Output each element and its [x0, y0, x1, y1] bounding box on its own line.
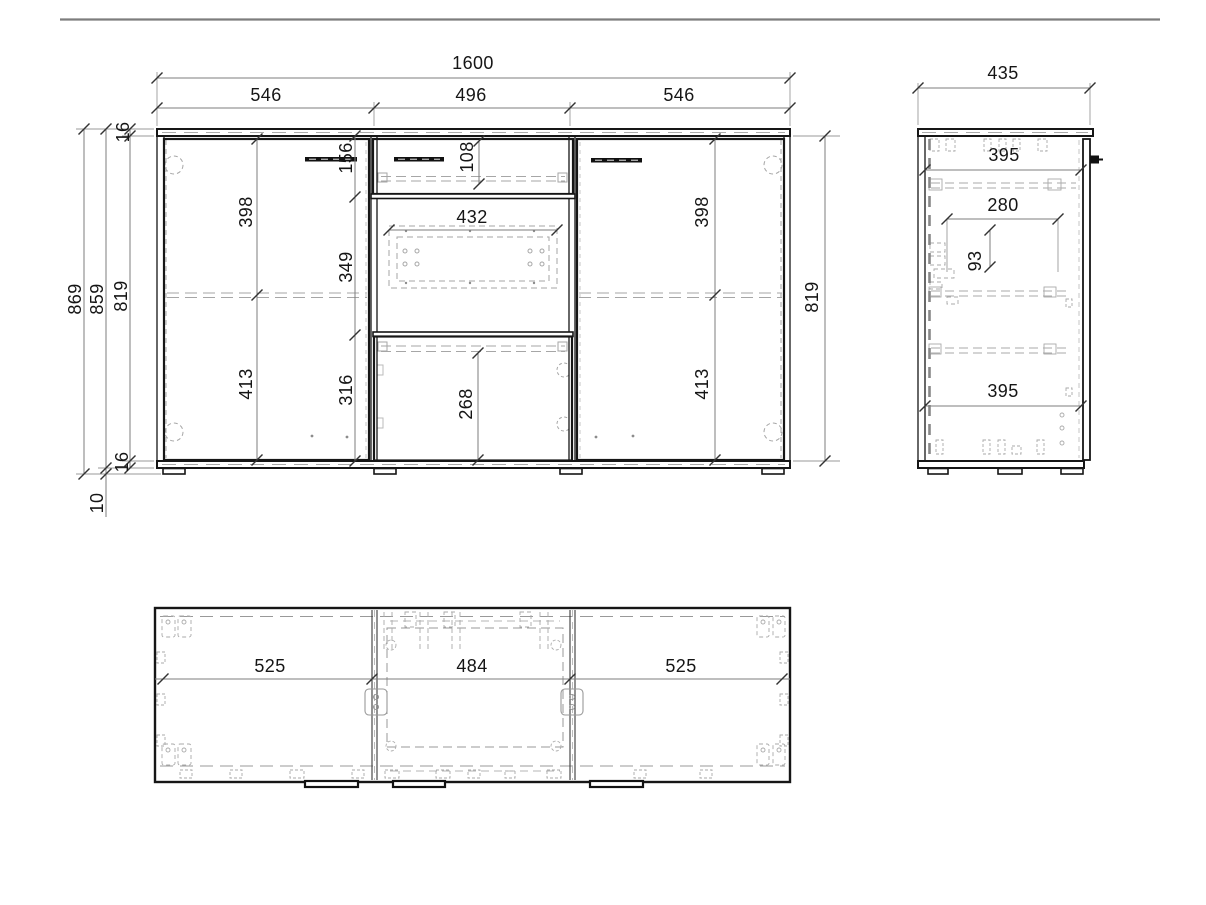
- dim-right-door-lower: 413: [693, 368, 711, 399]
- dim-side-drawer-depth: 280: [987, 196, 1018, 214]
- dim-niche-height: 349: [337, 251, 355, 282]
- drawing-page: 1600 546 496 546 869 859 819 16 16 10 81…: [0, 0, 1206, 905]
- dim-top-left-section: 525: [254, 657, 285, 675]
- dim-front-interior-right: 819: [803, 281, 821, 312]
- side-bottom-panel: [918, 461, 1084, 468]
- dim-side-depth: 435: [987, 64, 1018, 82]
- dim-front-body-height: 859: [88, 283, 106, 314]
- dim-side-clearance: 93: [966, 251, 984, 272]
- right-door: [577, 139, 784, 460]
- dim-side-lower-opening: 395: [987, 382, 1018, 400]
- dim-top-right-section: 525: [665, 657, 696, 675]
- side-door-front: [1083, 139, 1090, 460]
- dim-niche-width: 432: [456, 208, 487, 226]
- dim-front-center-width: 496: [455, 86, 486, 104]
- dim-left-door-lower: 413: [237, 368, 255, 399]
- dim-front-top-panel: 16: [114, 122, 132, 143]
- dim-drawer-opening: 108: [458, 141, 476, 172]
- dim-lower-zone: 316: [337, 374, 355, 405]
- dim-front-total-width: 1600: [452, 54, 494, 72]
- dim-left-door-upper: 398: [237, 196, 255, 227]
- dim-right-door-upper: 398: [693, 196, 711, 227]
- feet-front: [163, 469, 784, 475]
- dim-drawer-zone: 156: [337, 142, 355, 173]
- dim-front-interior-left: 819: [112, 280, 130, 311]
- dim-lower-opening: 268: [457, 388, 475, 419]
- top-view-outline: [155, 608, 790, 782]
- dim-top-center-section: 484: [456, 657, 487, 675]
- side-door-knob: [1090, 156, 1103, 164]
- dim-front-right-door-width: 546: [663, 86, 694, 104]
- dim-front-total-height: 869: [66, 283, 84, 314]
- side-view: [918, 129, 1103, 474]
- dim-front-foot-height: 10: [88, 493, 106, 514]
- front-view: [157, 129, 790, 474]
- dim-front-bottom-panel: 16: [113, 452, 131, 473]
- left-door: [164, 139, 369, 460]
- feet-side: [928, 469, 1083, 475]
- dim-side-upper-opening: 395: [988, 146, 1019, 164]
- dim-front-left-door-width: 546: [250, 86, 281, 104]
- drawing-linework: [0, 0, 1206, 905]
- top-view: [155, 608, 790, 787]
